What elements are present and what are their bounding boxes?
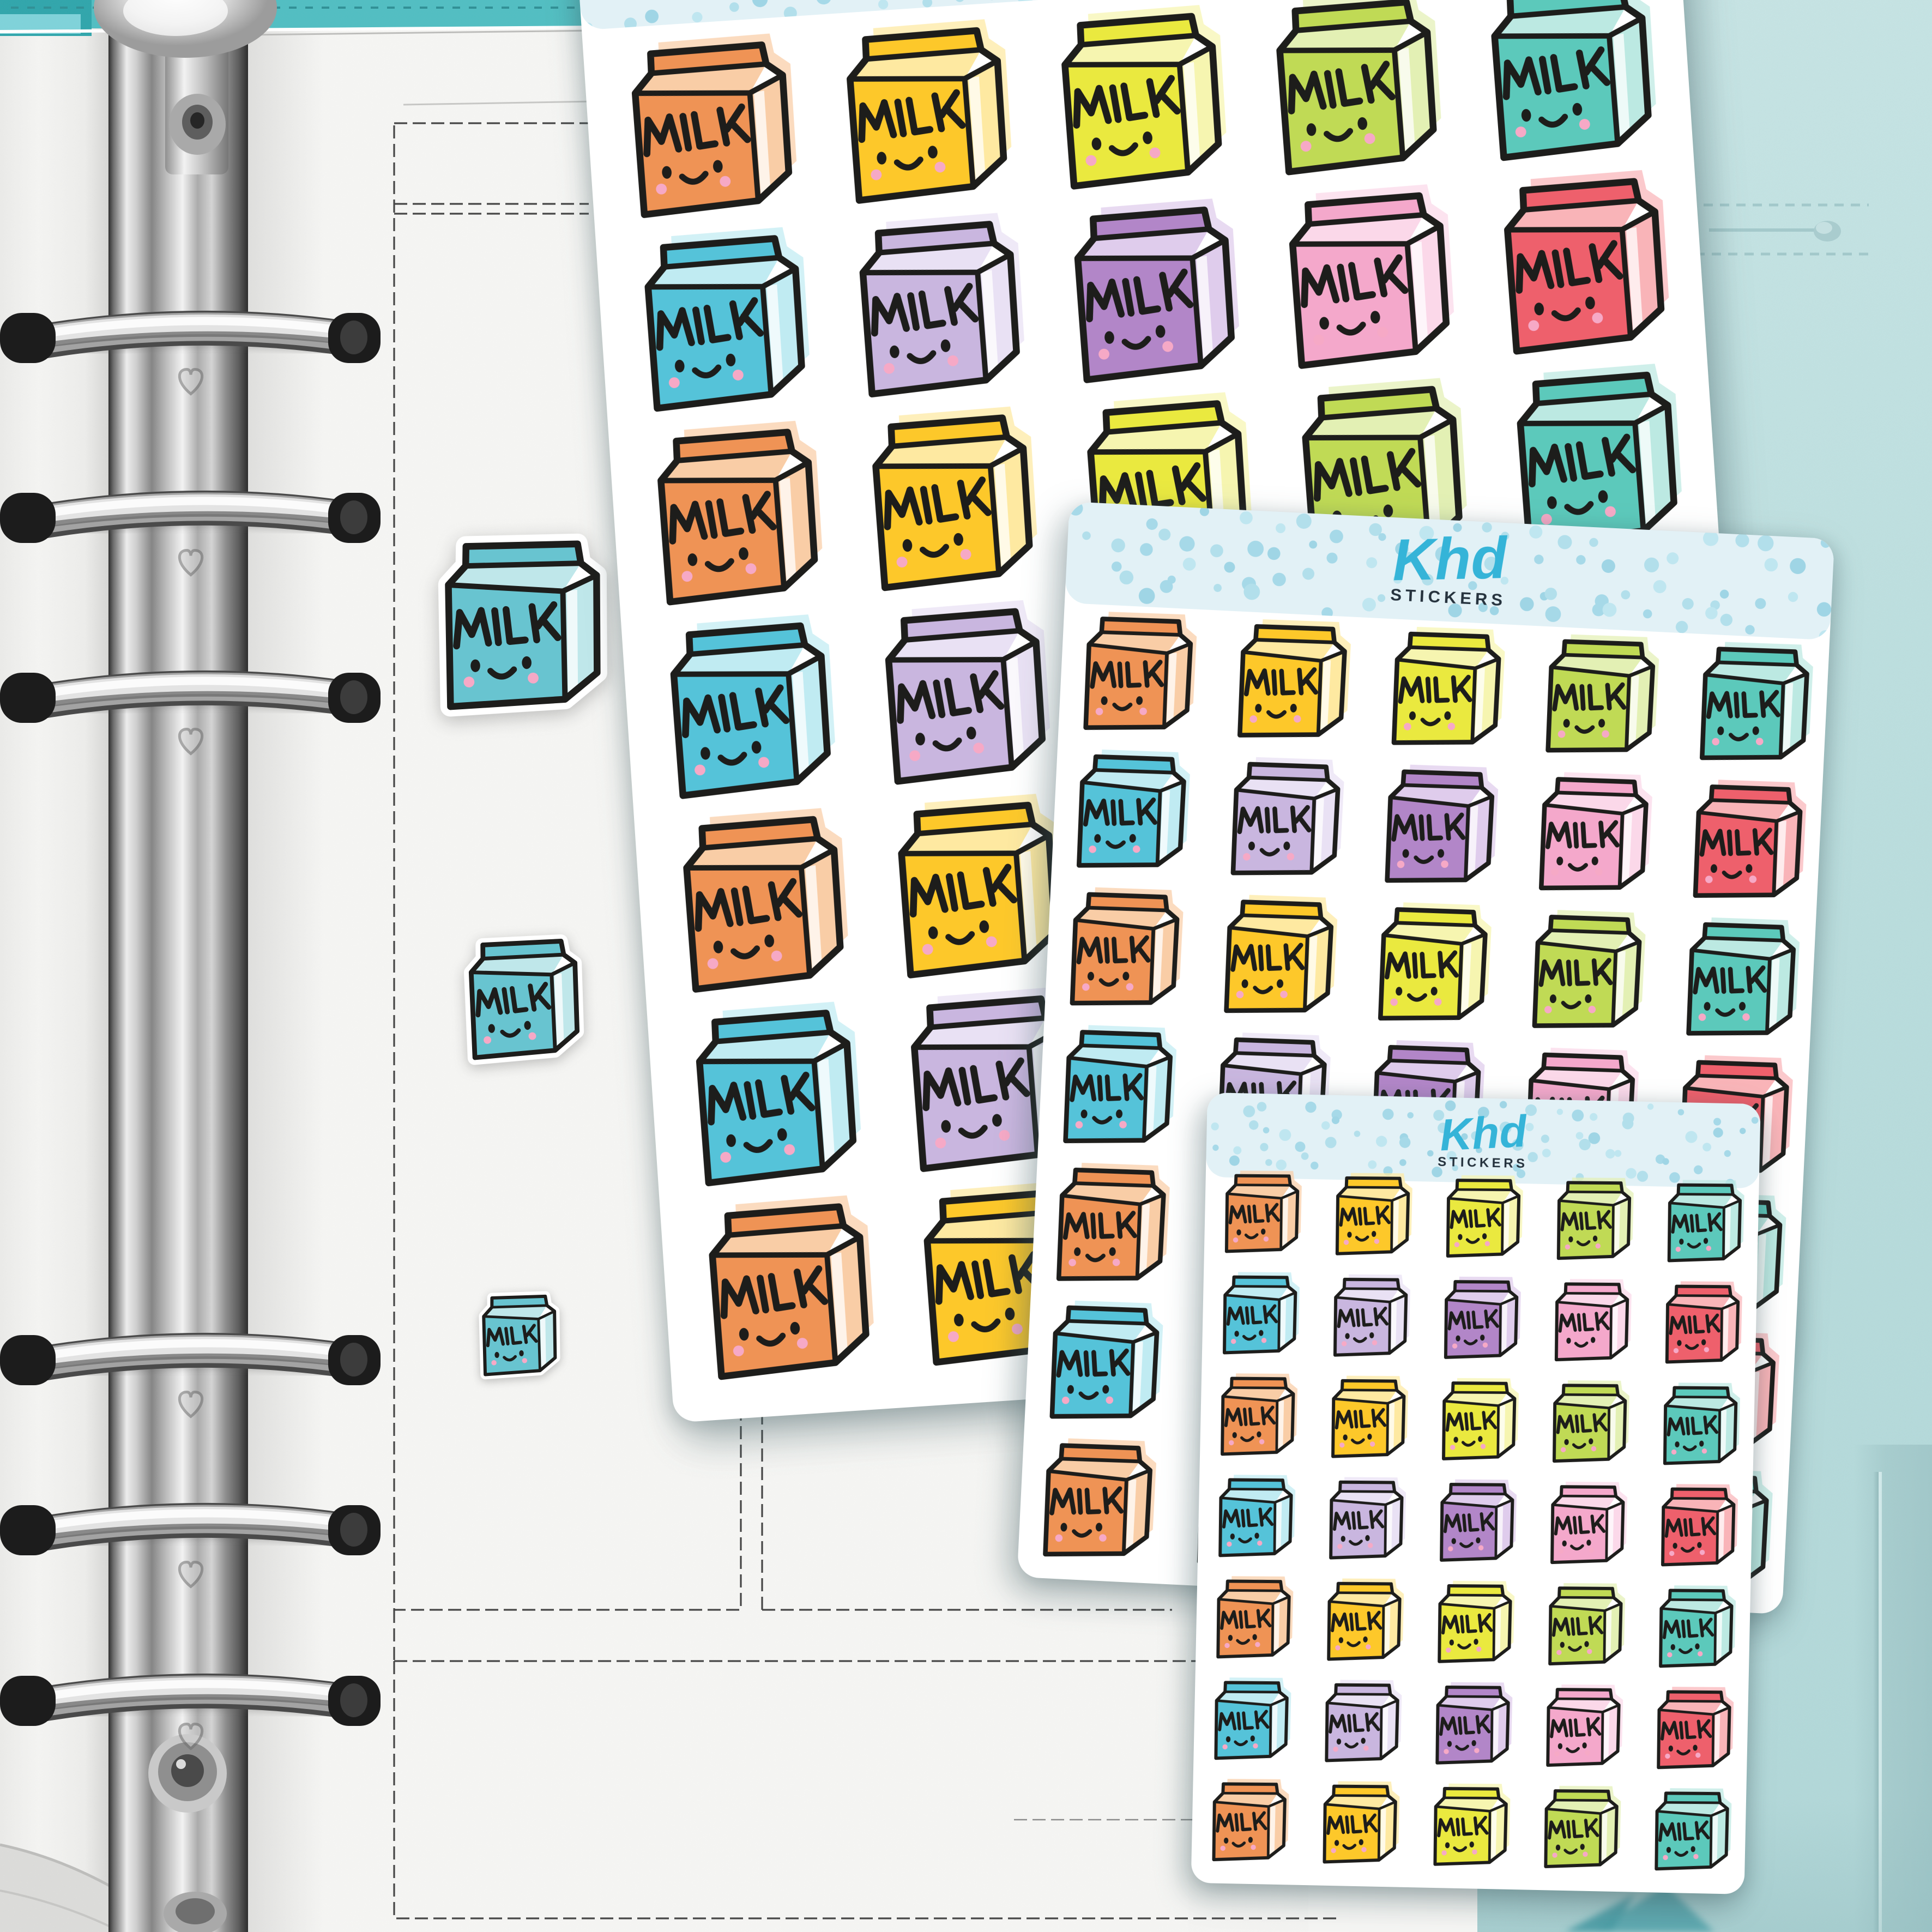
svg-text:Khd: Khd <box>1439 1107 1529 1161</box>
svg-text:Khd: Khd <box>1392 524 1508 593</box>
svg-text:STICKERS: STICKERS <box>1438 1155 1528 1171</box>
